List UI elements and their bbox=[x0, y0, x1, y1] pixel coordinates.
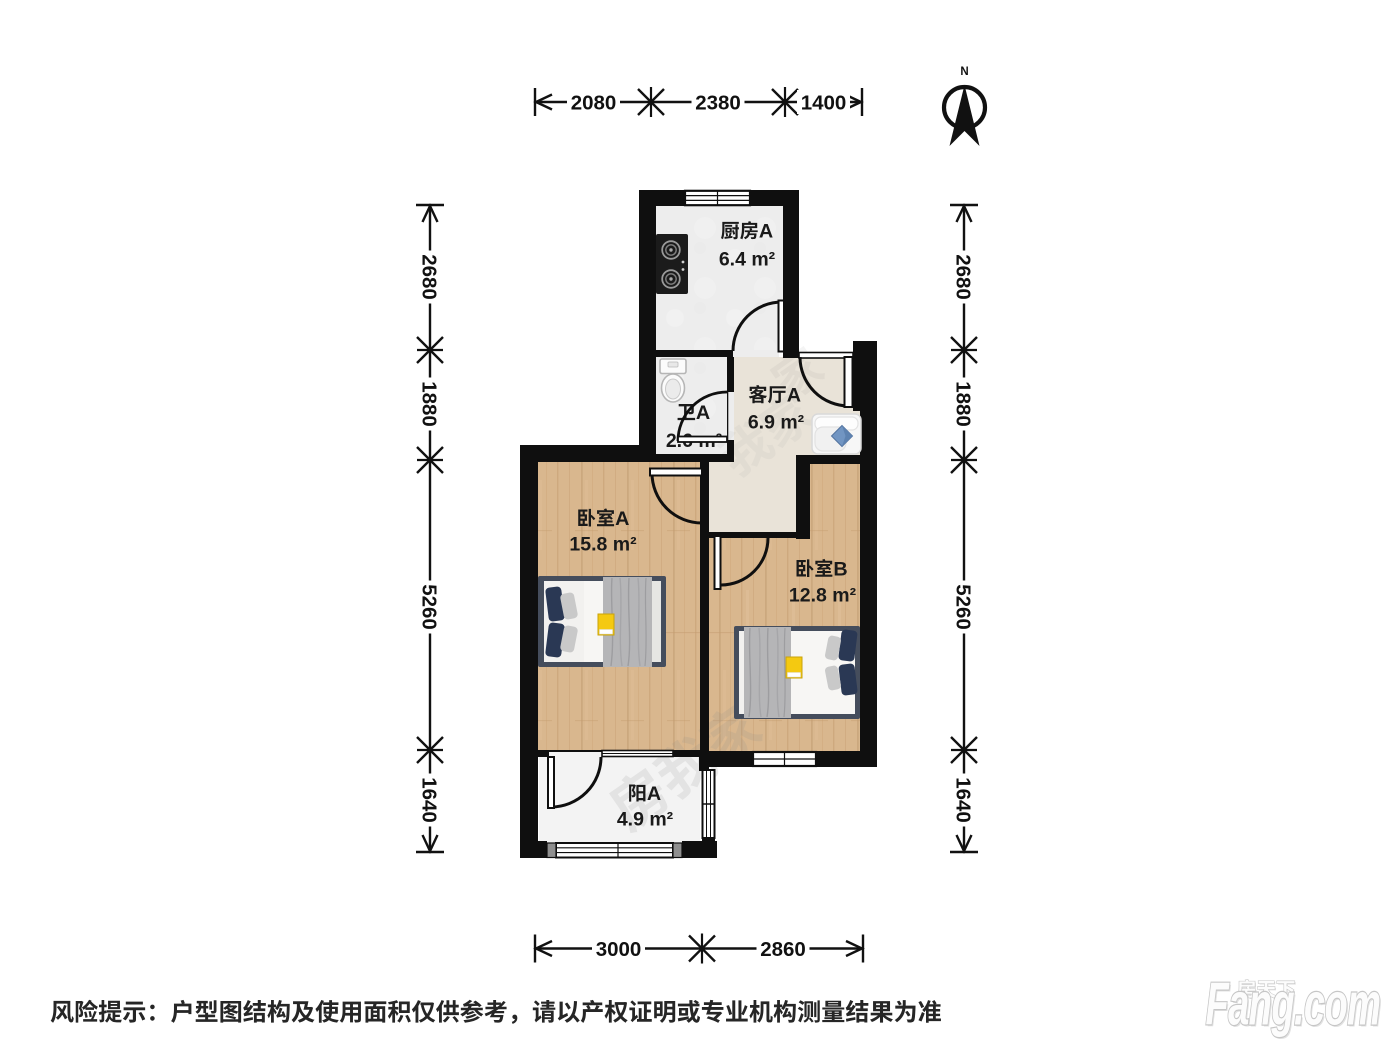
svg-text:2080: 2080 bbox=[571, 92, 617, 115]
svg-text:A: A bbox=[696, 402, 710, 424]
svg-text:N: N bbox=[960, 66, 968, 78]
svg-text:5260: 5260 bbox=[952, 584, 975, 630]
svg-text:6.9 m²: 6.9 m² bbox=[748, 412, 805, 434]
svg-text:A: A bbox=[647, 783, 661, 805]
svg-text:6.4 m²: 6.4 m² bbox=[719, 249, 776, 271]
svg-text:1640: 1640 bbox=[418, 777, 441, 823]
svg-text:2860: 2860 bbox=[760, 938, 806, 961]
svg-text:1640: 1640 bbox=[952, 777, 975, 823]
svg-text:A: A bbox=[759, 221, 773, 243]
svg-text:Fang.com: Fang.com bbox=[1206, 971, 1381, 1038]
svg-text:B: B bbox=[833, 559, 847, 581]
svg-text:15.8 m²: 15.8 m² bbox=[569, 534, 637, 556]
svg-text:4.9 m²: 4.9 m² bbox=[617, 809, 674, 831]
svg-text:2680: 2680 bbox=[952, 254, 975, 300]
svg-text:A: A bbox=[615, 508, 629, 530]
svg-text:3000: 3000 bbox=[596, 938, 642, 961]
svg-text:12.8 m²: 12.8 m² bbox=[789, 585, 857, 607]
svg-text:2380: 2380 bbox=[695, 92, 741, 115]
svg-text:2680: 2680 bbox=[418, 254, 441, 300]
svg-text:1880: 1880 bbox=[418, 381, 441, 427]
svg-text:1400: 1400 bbox=[801, 92, 847, 115]
svg-text:5260: 5260 bbox=[418, 584, 441, 630]
svg-text:1880: 1880 bbox=[952, 381, 975, 427]
svg-text:A: A bbox=[787, 385, 801, 407]
